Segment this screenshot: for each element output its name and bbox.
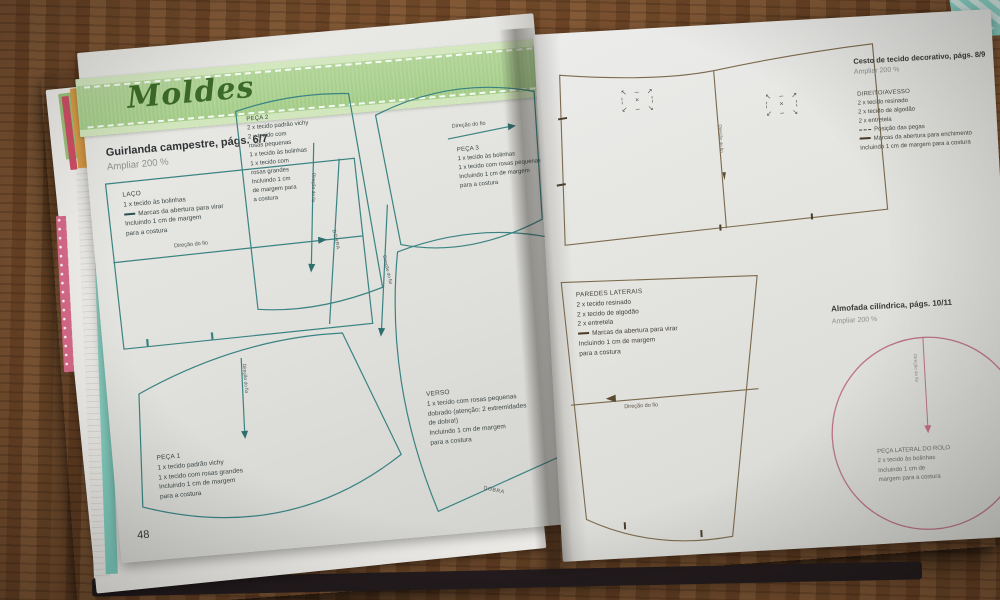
cross-icon: × xyxy=(635,97,639,104)
dash-icon: ¦ xyxy=(765,102,767,109)
photo-of-open-pattern-book: Moldes Guirlanda campestre, págs. 6/7 Am… xyxy=(0,0,1000,600)
cross-icon: × xyxy=(779,101,783,108)
peca1-grain-arrowhead xyxy=(241,431,249,440)
paredes-label-block: PAREDES LATERAIS 2 x tecido resinado 2 x… xyxy=(576,282,730,359)
corner-arrow-icon: ↗ xyxy=(791,92,797,99)
peca2-grain-arrowhead xyxy=(308,263,316,273)
corner-arrow-icon: ↗ xyxy=(647,88,653,95)
dash-icon: – xyxy=(780,109,784,116)
opening-mark-icon xyxy=(578,332,589,335)
peca1-label-block: PEÇA 1 1 x tecido padrão vichy 1 x tecid… xyxy=(156,444,270,502)
corner-arrow-icon: ↙ xyxy=(766,110,772,117)
corner-arrow-icon: ↘ xyxy=(792,109,798,116)
cesto-bottom-notches xyxy=(720,213,813,230)
cesto-legend-block: DIREITO/AVESSO 2 x tecido resinado 2 x t… xyxy=(857,83,1000,154)
corner-arrow-icon: ↙ xyxy=(621,106,627,113)
dash-icon: – xyxy=(779,92,783,99)
dash-icon: ¦ xyxy=(651,96,653,103)
paredes-notch-marks xyxy=(625,518,702,541)
verso-label-block: VERSO 1 x tecido com rosas pequenas dobr… xyxy=(426,381,531,448)
laco-grain-arrowhead xyxy=(318,236,328,244)
laco-label-block: LAÇO 1 x tecido às bolinhas Marcas da ab… xyxy=(122,180,246,239)
grain-direction-label: Direção do fio xyxy=(310,173,316,203)
circle-grain-line xyxy=(923,337,928,431)
corner-arrow-icon: ↖ xyxy=(621,89,627,96)
paredes-grain-line xyxy=(571,389,759,405)
dash-icon: ¦ xyxy=(621,98,623,105)
dashed-mark-icon xyxy=(859,129,871,131)
corner-arrow-icon: ↘ xyxy=(648,105,654,112)
dash-icon: – xyxy=(635,88,639,95)
right-page: ↖–↗ ¦×¦ ↙–↘ ↖–↗ ¦×¦ ↙–↘ Direção do fio C… xyxy=(533,9,1000,562)
laco-notch-marks xyxy=(147,332,212,346)
dash-icon: ¦ xyxy=(796,100,798,107)
peca2-label-block: PEÇA 2 2 x tecido padrão vichy 2 x tecid… xyxy=(246,110,316,205)
corner-arrow-icon: ↖ xyxy=(765,93,771,100)
center-grain-arrowhead xyxy=(378,327,386,337)
handle-position-marker-icon: ↖–↗ ¦×¦ ↙–↘ xyxy=(765,90,799,120)
circle-piece-label-block: PEÇA LATERAL DO ROLO 2 x tecido às bolin… xyxy=(877,441,999,485)
handle-position-marker-icon: ↖–↗ ¦×¦ ↙–↘ xyxy=(620,86,654,116)
dash-icon: – xyxy=(636,105,640,112)
opening-mark-icon xyxy=(860,137,871,140)
page-number: 48 xyxy=(137,529,150,542)
circle-grain-arrowhead xyxy=(924,425,931,433)
opening-mark-icon xyxy=(124,212,135,215)
